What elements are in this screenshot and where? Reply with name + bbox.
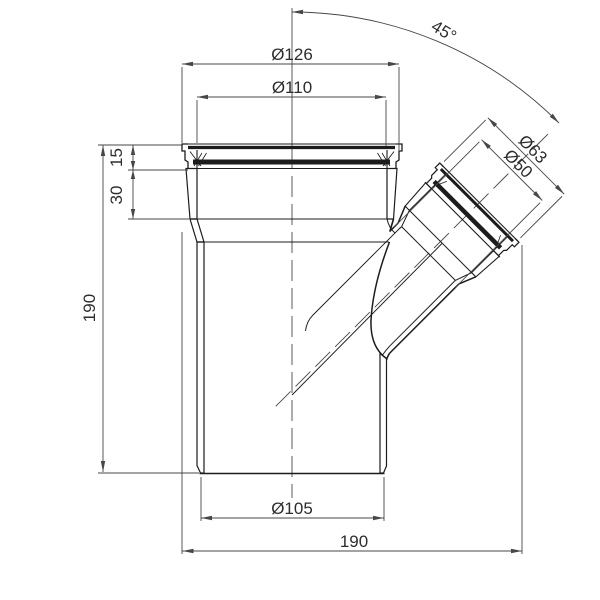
branch-pipe-wall-lower [390, 284, 459, 353]
main-pipe [197, 228, 442, 474]
socket-wall-left [186, 169, 197, 220]
arrow-bottom [131, 161, 135, 170]
arrow-left [183, 549, 194, 553]
arrow-right [511, 549, 522, 553]
arrow-bottom [101, 461, 105, 472]
branch-socket-wall-left [404, 183, 432, 211]
pipe-fitting-drawing: Ø63 Ø50 Ø126 Ø110 Ø105 190 [0, 0, 600, 600]
branch-centerline [274, 134, 548, 408]
arrow-arc-start [292, 10, 303, 14]
dim-socket-rim-height: 15 [107, 145, 135, 170]
dim-label-socket-depth: 30 [107, 186, 126, 205]
branch-junction-fillet-outer [387, 353, 390, 360]
dim-label-overall-height: 190 [80, 294, 99, 322]
arrow-right [533, 191, 544, 202]
angle-arc [292, 12, 559, 123]
arrow-top [101, 145, 105, 156]
socket-wall-right [387, 169, 397, 220]
dim-label-pipe-outer-diameter: Ø105 [271, 499, 313, 518]
rim-tab-left [182, 144, 188, 169]
arrow-left [480, 138, 491, 149]
branch-socket-wall-right [472, 251, 500, 279]
dim-label-socket-outer-diameter: Ø126 [271, 45, 313, 64]
dim-label-socket-rim-height: 15 [107, 148, 126, 167]
arrow-left [197, 95, 208, 99]
branch-inner-edge-upper [306, 228, 401, 332]
pipe-wall-left [197, 242, 204, 473]
dim-pipe-outer-diameter: Ø105 [201, 499, 384, 520]
arrow-right [375, 95, 386, 99]
dim-socket-outer-diameter: Ø126 [182, 45, 399, 66]
arrow-right [373, 516, 384, 520]
arrow-top [131, 145, 135, 155]
arrow-right [388, 62, 399, 66]
technical-drawing-canvas: Ø63 Ø50 Ø126 Ø110 Ø105 190 [0, 0, 600, 600]
branch-pipe-wall-lower-inner [390, 280, 455, 345]
dim-label-socket-inner-diameter: Ø110 [272, 78, 312, 97]
branch-opening-curve [371, 242, 390, 359]
branch-pipe-wall-upper-inner [400, 227, 402, 229]
arrow-top [131, 170, 135, 179]
arrow-left [201, 516, 212, 520]
arrow-right [555, 185, 566, 196]
arrow-left [182, 62, 193, 66]
extension-lines [98, 67, 522, 554]
dim-label-branch-angle: 45° [428, 17, 460, 47]
socket-taper-left [190, 219, 204, 242]
dim-overall-height: 190 [80, 145, 105, 472]
arrow-left [486, 116, 497, 127]
dim-label-overall-width: 190 [340, 532, 368, 551]
dim-overall-width: 190 [182, 532, 522, 553]
pipe-wall-right [380, 354, 387, 474]
arrow-bottom [131, 209, 135, 219]
branch-inner-edge-lower [292, 244, 442, 396]
dim-branch-angle: 45° [292, 10, 559, 123]
dim-socket-depth: 30 [107, 170, 135, 219]
dim-socket-inner-diameter: Ø110 [197, 78, 386, 99]
